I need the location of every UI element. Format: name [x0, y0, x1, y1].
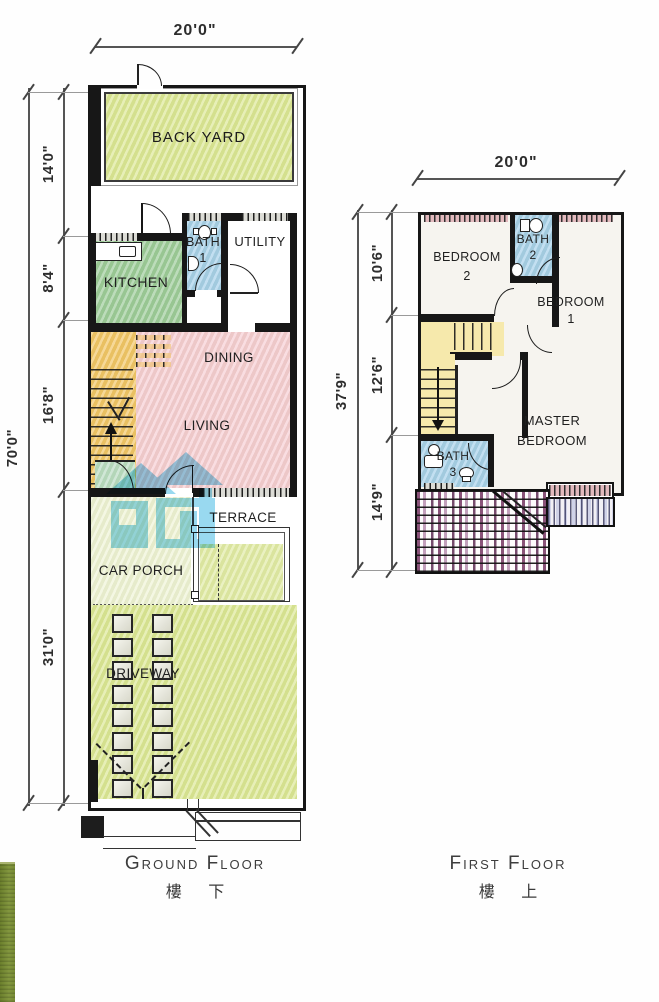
car-porch-label: CAR PORCH — [91, 562, 191, 579]
paver — [152, 685, 173, 704]
watermark-houses-icon — [100, 446, 226, 550]
gate-dash — [218, 544, 219, 601]
kitchen-sink-icon — [119, 246, 136, 257]
bedroom2-label: BEDROOM2 — [424, 248, 510, 286]
stair-above-dashes — [136, 335, 171, 367]
ff-width-dimension: 20'0" — [466, 154, 566, 172]
window-hatch — [424, 215, 508, 222]
stair-treads — [454, 323, 497, 350]
dimension-guide — [357, 570, 418, 571]
living-label: LIVING — [161, 417, 253, 434]
dimension-guide — [63, 236, 88, 237]
door-gap — [195, 290, 217, 297]
first-floor-title: First Floor — [408, 853, 608, 875]
paver — [112, 732, 133, 751]
window-hatch — [242, 213, 288, 221]
entry-steps-fill — [200, 544, 283, 600]
paver — [112, 779, 133, 798]
post — [191, 591, 199, 599]
wall-segment — [421, 314, 494, 322]
gf-segment-dim-4: 31'0" — [40, 615, 58, 679]
stair-wall-line — [455, 365, 458, 437]
gf-total-dim: 70'0" — [4, 416, 22, 480]
door-arc — [142, 203, 171, 234]
wall-segment — [450, 352, 492, 360]
door-arc — [527, 325, 552, 353]
gf-width-dimension-line — [95, 46, 297, 48]
paver — [152, 708, 173, 727]
window-hatch — [549, 485, 611, 496]
ff-total-dimension-line — [357, 210, 359, 570]
paver — [152, 732, 173, 751]
porch-roof — [415, 489, 550, 574]
ground-floor-title: Ground Floor — [95, 853, 295, 875]
watermark-house-wall — [199, 488, 212, 544]
photo-strip — [0, 862, 15, 1002]
bath3-label: BATH3 — [429, 448, 477, 480]
stairs-down-arrow-icon — [437, 367, 439, 422]
paver — [152, 638, 173, 657]
window-hatch — [188, 213, 224, 221]
wall-segment — [91, 760, 98, 802]
wall-segment — [221, 213, 228, 323]
floor-plan-page: 20'0" 14'0" 8'4" 16'8" 31'0" 70'0" BACK … — [0, 0, 659, 1000]
back-yard-label: BACK YARD — [152, 129, 246, 146]
wall-segment — [290, 213, 297, 497]
gf-segment-dim-3: 16'8" — [40, 373, 58, 437]
door-arc — [138, 64, 162, 86]
footpath-lower — [103, 836, 196, 849]
kitchen-counter — [92, 242, 142, 261]
kitchen-label: KITCHEN — [92, 274, 180, 291]
ff-segment-dim-1: 10'6" — [369, 231, 387, 295]
ff-segment-dimension-line — [391, 210, 393, 570]
ff-width-dimension-line — [417, 178, 619, 180]
door-arc — [494, 288, 514, 316]
bedroom1-label: BEDROOM1 — [531, 294, 611, 328]
dimension-guide — [391, 315, 418, 316]
dining-label: DINING — [183, 349, 275, 366]
gf-segment-dim-2: 8'4" — [40, 246, 58, 310]
paver — [152, 779, 173, 798]
paver — [112, 708, 133, 727]
gf-segment-dim-1: 14'0" — [40, 132, 58, 196]
dimension-guide — [28, 92, 88, 93]
door-arc — [230, 264, 259, 293]
footpath-line — [196, 820, 300, 822]
dimension-guide — [63, 490, 88, 491]
bath2-label: BATH2 — [513, 231, 553, 263]
gf-width-dimension: 20'0" — [145, 22, 245, 40]
window-hatch — [94, 233, 137, 241]
ground-floor-title-chinese: 樓 下 — [95, 878, 295, 902]
door-leaf — [230, 292, 258, 294]
wall-segment — [91, 88, 101, 186]
wall-segment — [91, 323, 228, 332]
door-arc — [492, 360, 521, 389]
bay-roof-strip — [546, 497, 615, 527]
stairs-up-arrow-icon — [105, 422, 117, 434]
watermark-door — [180, 511, 197, 539]
dimension-guide — [357, 212, 418, 213]
first-floor-title-chinese: 樓 上 — [408, 878, 608, 902]
watermark-window — [119, 509, 136, 525]
gf-segment-dimension-line — [63, 88, 65, 806]
stairs-down-arrow-icon — [432, 420, 444, 431]
sink-icon — [511, 263, 523, 277]
utility-label: UTILITY — [228, 233, 292, 250]
first-floor-plan: BEDROOM2 BATH2 BEDROOM1 — [418, 212, 624, 496]
watermark-roof — [106, 463, 176, 494]
ff-segment-dim-3: 14'9" — [369, 470, 387, 534]
watermark-house-body — [111, 501, 148, 548]
paver — [112, 614, 133, 633]
paver — [112, 685, 133, 704]
wall-segment — [421, 434, 494, 441]
driveway-label: DRIVEWAY — [93, 665, 193, 682]
paver — [152, 755, 173, 774]
dimension-guide — [28, 803, 88, 804]
ff-segment-dim-2: 12'6" — [369, 343, 387, 407]
bath1-label: BATH1 — [181, 234, 225, 266]
gf-total-dimension-line — [28, 88, 30, 806]
gate-center-dash — [142, 788, 144, 799]
paver — [112, 638, 133, 657]
back-yard-room: BACK YARD — [104, 92, 294, 182]
ff-total-dim: 37'9" — [333, 359, 351, 423]
gate-post — [81, 816, 104, 838]
paver — [152, 614, 173, 633]
master-bedroom-label: MASTERBEDROOM — [496, 411, 608, 451]
dimension-guide — [391, 435, 418, 436]
step-edge — [187, 799, 199, 812]
dimension-guide — [63, 320, 88, 321]
